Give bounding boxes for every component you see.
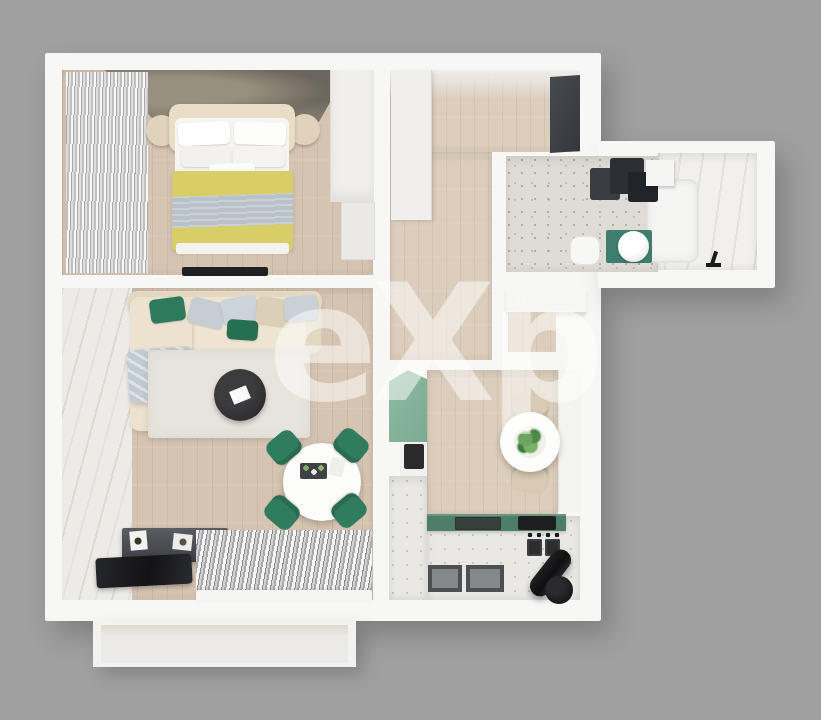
bedroom-tv (182, 267, 268, 276)
table-plant (514, 426, 546, 458)
bed-blanket-grey-stripe (172, 193, 293, 228)
tv-glass-panel (95, 554, 192, 589)
bathroom-faucet-icon (706, 263, 721, 267)
balcony (93, 621, 356, 667)
bedroom-wardrobe (330, 70, 374, 202)
table-tray (300, 463, 327, 479)
bathroom-toilet (570, 236, 600, 265)
kitchen-cooktop (518, 516, 556, 530)
kitchen-sage-cabinet (389, 370, 427, 442)
kitchen-floor-mat (428, 565, 462, 592)
sofa-pillow-grey (283, 294, 319, 322)
kitchen-niche-floor (508, 312, 556, 352)
kitchen-sink (455, 517, 501, 530)
kitchen-oven (404, 444, 424, 469)
sofa-pillow-green (226, 319, 258, 341)
bed-pillow (234, 121, 287, 146)
picture-frame (129, 530, 148, 550)
bedroom-window-curtains (66, 72, 148, 273)
balcony-floor (101, 625, 348, 663)
bathroom-sink-box (646, 160, 674, 186)
bedroom-dresser (341, 202, 375, 260)
floor-plan-render: eXp® (0, 0, 821, 720)
bed-foot-sheet (176, 243, 289, 254)
living-windowsill (196, 590, 372, 601)
living-window-curtain (196, 530, 372, 594)
stove-grate (527, 539, 542, 556)
kitchen-niche-dresser (506, 288, 586, 314)
black-cylinder-end (545, 576, 573, 604)
kitchen-side-counter (558, 370, 581, 512)
hallway-wardrobe (391, 70, 432, 220)
sofa-pillow-green (149, 296, 187, 325)
hallway-dark-cabinet (550, 75, 580, 153)
kitchen-corridor-floor (389, 476, 427, 600)
kitchen-floor-mat (466, 565, 504, 592)
bed-pillow (177, 121, 230, 147)
picture-frame (172, 533, 193, 551)
bathroom-round-basin (618, 231, 649, 262)
